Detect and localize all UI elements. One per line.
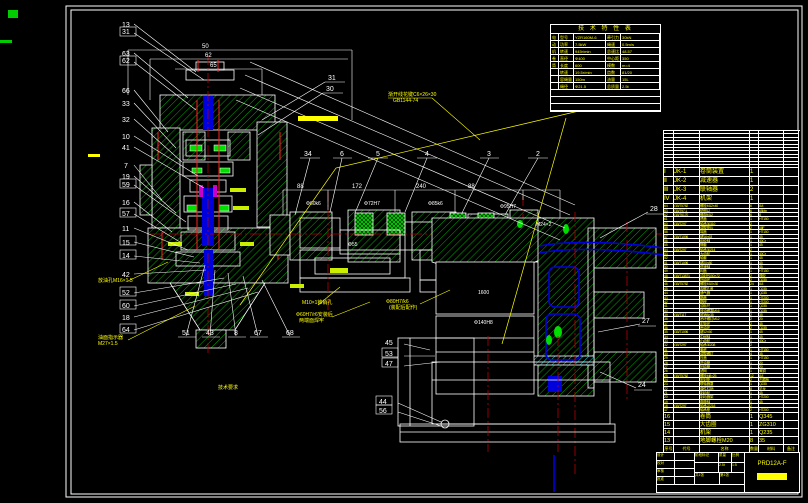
oil-note-2: M27×1.5 — [98, 341, 118, 347]
callout: 10 — [122, 134, 130, 141]
spec-footer-line — [551, 97, 660, 104]
spec-table-body: 电 型号 YZR160M-6 牵引力 30kN 动 功率 7.5kW 绳速 0.… — [551, 34, 660, 90]
spec-row: 机 转速 945r/min 总速比 48.57 — [551, 48, 660, 55]
callout: 60 — [122, 303, 130, 310]
scale-label: 比例 — [732, 453, 745, 463]
bom-footer-row: 15大齿圈 1ZG310 — [664, 421, 800, 429]
fit-note-2a: Φ60H7/r6安装后 — [296, 311, 333, 318]
fit-note-1b: (装配后配作) — [389, 304, 418, 311]
cad-viewport[interactable]: 50 62 65 88 172 240 88 Φ60k6 Φ72H7 Φ85k6… — [0, 0, 808, 503]
bom-section-row: ⅠJK-1卷筒装置 1 — [664, 168, 800, 177]
svg-text:Φ140H8: Φ140H8 — [474, 320, 493, 326]
spec-table: 技 术 特 性 表 电 型号 YZR160M-6 牵引力 30kN 动 功率 7… — [550, 24, 661, 112]
callout: 67 — [254, 330, 262, 337]
callout: 11 — [122, 226, 129, 233]
parts-list: ⅠJK-1卷筒装置 1 ⅡJK-2减速器 1 ⅢJK-3联轴器 2 ⅣJK-4机… — [663, 130, 800, 453]
callout: 24 — [638, 382, 646, 389]
sheet-no: 第1张 — [720, 473, 745, 485]
callout: 5 — [376, 151, 380, 158]
callout: 59 — [122, 182, 130, 189]
callout: 18 — [122, 315, 130, 322]
sign-label: 审核 — [657, 469, 675, 477]
callout: 43 — [206, 330, 214, 337]
technical-notes: 技术要求 — [196, 384, 354, 394]
sign-label: 批准 — [657, 477, 675, 485]
callout: 13 — [122, 22, 130, 29]
bom-footer-row: 14机架 1Q235 — [664, 429, 800, 437]
spec-row: 转速 19.5r/min 齿数 81/20 — [551, 69, 660, 76]
bom-section-row: ⅣJK-4机架 1 — [664, 195, 800, 204]
spec-footer-line — [551, 104, 660, 111]
mass-label: 质量 — [719, 453, 732, 463]
callout: 47 — [385, 361, 393, 368]
svg-text:Φ72H7: Φ72H7 — [364, 201, 380, 207]
callout: 56 — [379, 408, 387, 415]
callout: 68 — [286, 330, 294, 337]
fit-note-2b: 两端面焊牢 — [299, 317, 324, 324]
callout: 27 — [642, 318, 650, 325]
callout: 33 — [122, 101, 130, 108]
spline-note: 渐开线花键C6×26×30 — [388, 91, 437, 98]
spec-table-footer — [551, 90, 660, 111]
svg-text:50: 50 — [202, 44, 209, 50]
callout: 4 — [425, 151, 429, 158]
spec-row: 电 型号 YZR160M-6 牵引力 30kN — [551, 34, 660, 41]
svg-text:Φ85k6: Φ85k6 — [428, 201, 443, 207]
callout: 41 — [122, 145, 130, 152]
callout: 63 — [122, 51, 130, 58]
svg-text:240: 240 — [416, 184, 427, 190]
callout: 45 — [385, 340, 393, 347]
callout: 44 — [379, 399, 387, 406]
spec-row: 动 功率 7.5kW 绳速 0.5m/s — [551, 41, 660, 48]
callout: 64 — [122, 327, 130, 334]
callout: 6 — [340, 151, 344, 158]
callout: 31 — [328, 75, 336, 82]
callout: 8 — [234, 330, 238, 337]
callout: 14 — [122, 253, 130, 260]
spec-table-title: 技 术 特 性 表 — [551, 25, 660, 34]
spec-row: 绳径 Φ21.5 总质量 2.5t — [551, 83, 660, 90]
svg-text:Φ60k6: Φ60k6 — [306, 201, 321, 207]
drawing-number: PRD12A-F — [745, 461, 799, 467]
callout: 3 — [487, 151, 491, 158]
callout: 16 — [122, 200, 130, 207]
pin-note: M10×1锥销孔 — [302, 299, 332, 306]
svg-text:1600: 1600 — [478, 290, 489, 296]
margin-marks — [0, 10, 100, 157]
callout: 31 — [122, 29, 130, 36]
callout: 52 — [122, 290, 130, 297]
svg-text:88: 88 — [297, 184, 304, 190]
callout: 28 — [650, 206, 658, 213]
callout: 34 — [304, 151, 312, 158]
spec-footer-line — [551, 90, 660, 97]
svg-text:65: 65 — [210, 63, 217, 69]
callout: 66 — [122, 88, 130, 95]
drain-note: 放油孔M16×1.5 — [98, 277, 133, 284]
oil-note-1: 油面指示器 — [98, 334, 123, 341]
bom-section-row: ⅡJK-2减速器 1 — [664, 177, 800, 186]
svg-text:62: 62 — [205, 53, 212, 59]
highlight-bar — [298, 116, 338, 121]
drawing-name-highlight — [757, 473, 787, 480]
scale-value: 1:5 — [732, 463, 745, 473]
title-block: 设计 校对 审核 批准 阶段标记 质量 比例 2.5t 1:5 共1张 第1张 … — [656, 452, 800, 493]
callout: 15 — [122, 240, 130, 247]
housing-section — [432, 212, 664, 492]
callout: 51 — [182, 330, 190, 337]
sign-label: 设计 — [657, 453, 675, 461]
callout: 57 — [122, 211, 130, 218]
spec-row: 筒 长度 600 模数 m=4 — [551, 62, 660, 69]
svg-text:M24×2: M24×2 — [536, 222, 552, 228]
callout: 32 — [122, 117, 130, 124]
bom-section-row: ⅢJK-3联轴器 2 — [664, 186, 800, 195]
callout: 30 — [326, 86, 334, 93]
mass-value: 2.5t — [719, 463, 732, 473]
spec-row: 容绳量 150m 油量 15L — [551, 76, 660, 83]
callout: 62 — [122, 58, 130, 65]
notes-title: 技术要求 — [218, 384, 354, 391]
callout: 7 — [124, 163, 128, 170]
bom-footer-row: 13地脚螺栓M20 835 — [664, 437, 800, 445]
sheet-total: 共1张 — [695, 473, 720, 485]
spec-row: 卷 直径 Φ400 中心距 350 — [551, 55, 660, 62]
stage-label: 阶段标记 — [695, 453, 719, 463]
callout: 19 — [122, 174, 130, 181]
spline-std: GB1144-74 — [393, 98, 418, 104]
bom-footer-row: 16卷筒 1Q345 — [664, 413, 800, 421]
callout: 2 — [536, 151, 540, 158]
svg-text:Φ55: Φ55 — [348, 242, 358, 248]
sign-label: 校对 — [657, 461, 675, 469]
svg-text:172: 172 — [352, 184, 363, 190]
callout: 53 — [385, 351, 393, 358]
